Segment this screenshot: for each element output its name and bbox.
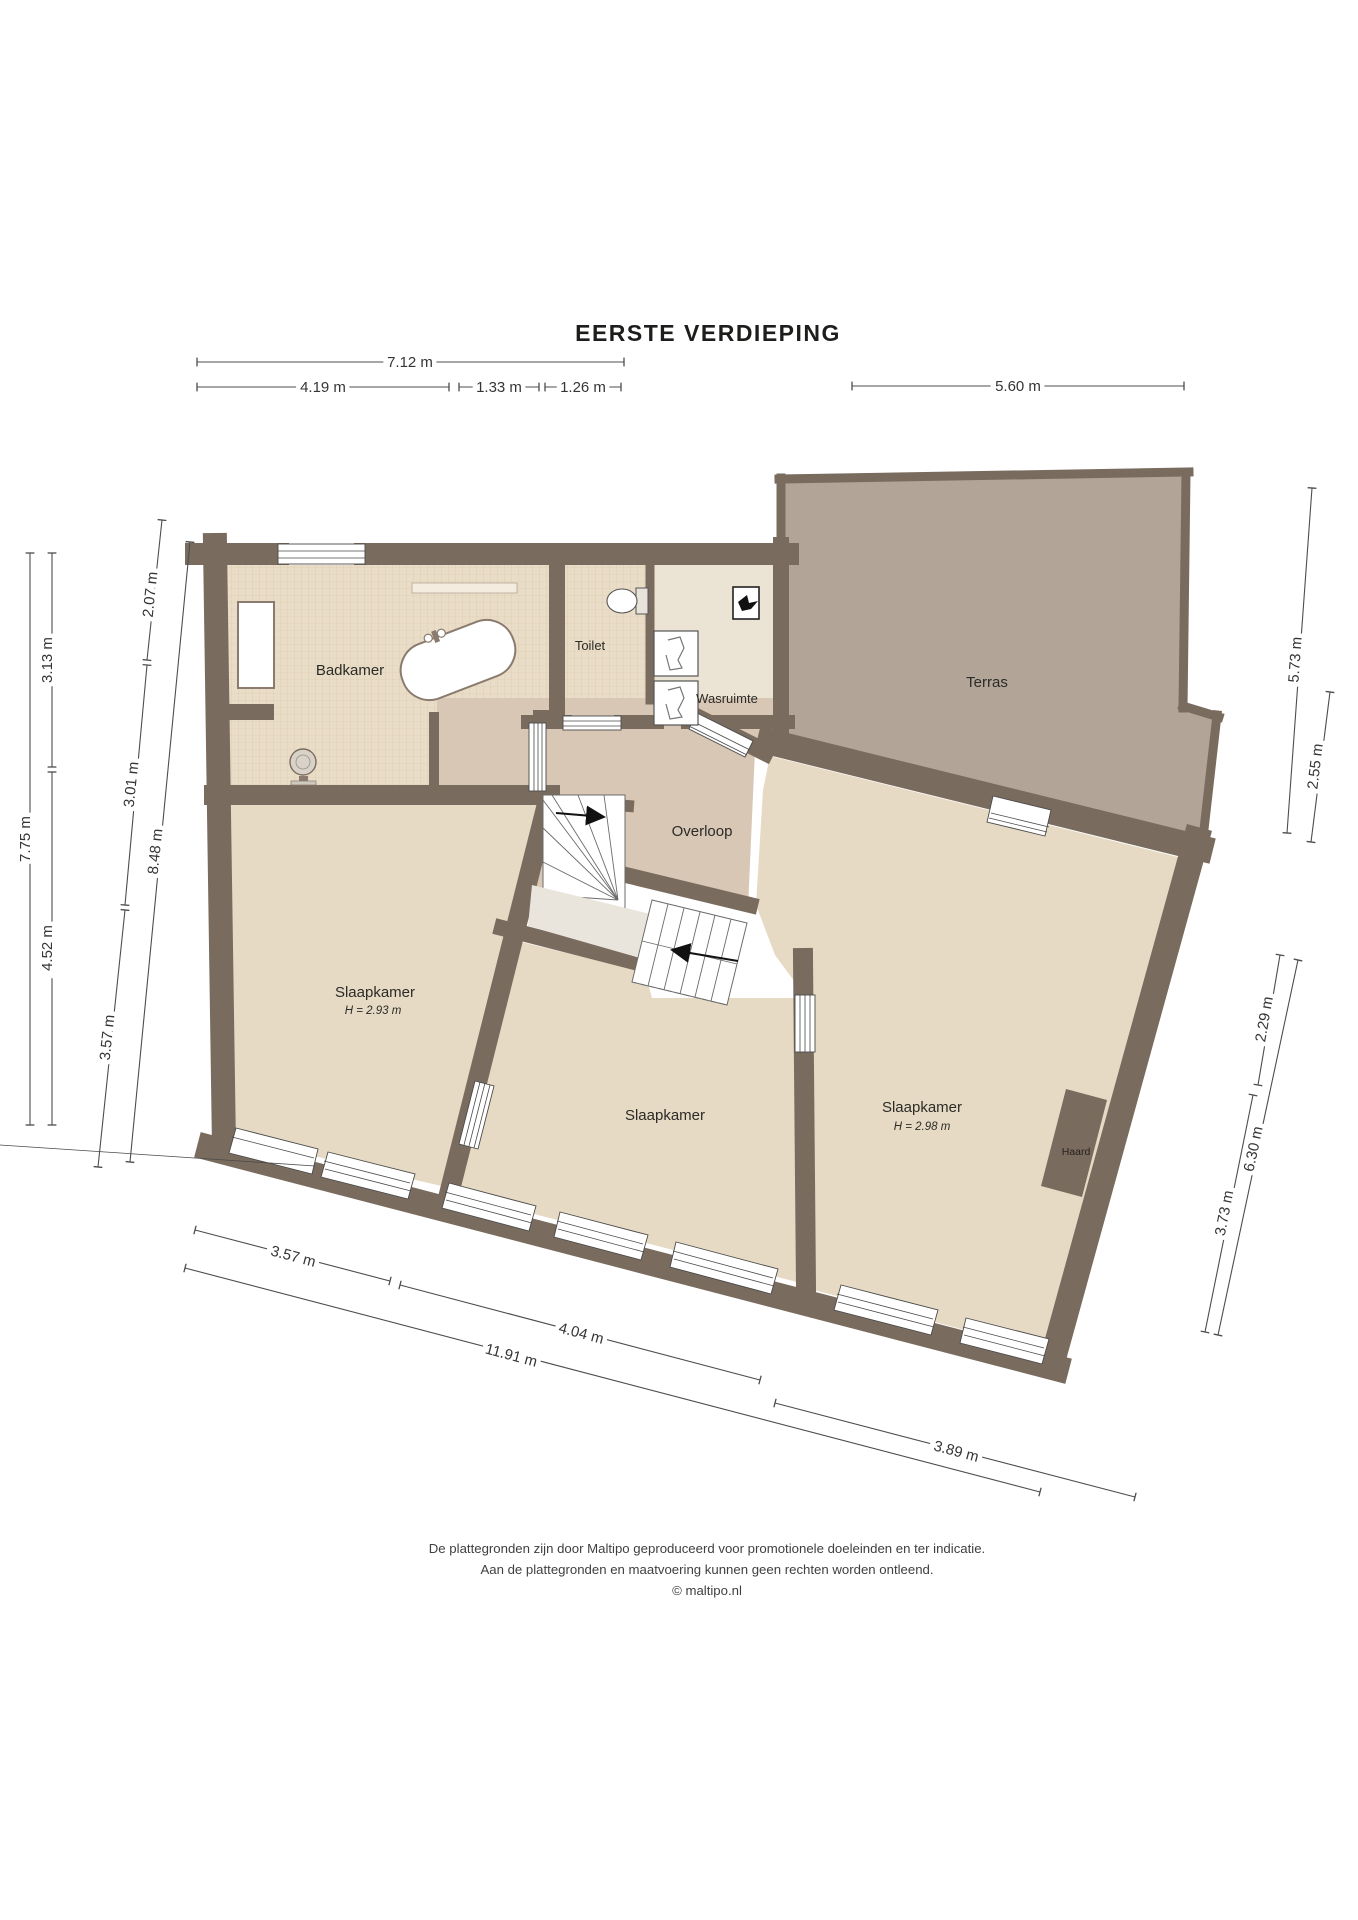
dim-bottom-389: 3.89 m — [932, 1438, 981, 1466]
floors — [214, 472, 1219, 1352]
dim-right-630: 6.30 m — [1241, 1125, 1267, 1173]
label-wasruimte: Wasruimte — [696, 691, 758, 706]
label-slaapkamer-midden: Slaapkamer — [625, 1107, 705, 1124]
cabinet — [238, 602, 274, 688]
dim-top-419: 4.19 m — [300, 379, 346, 396]
dim-bottom-404: 4.04 m — [557, 1320, 606, 1348]
label-slaapkamer-rechts: Slaapkamer — [882, 1099, 962, 1116]
label-terras: Terras — [966, 674, 1008, 691]
dim-bottom-357: 3.57 m — [269, 1243, 318, 1271]
dim-bottom-1191: 11.91 m — [483, 1341, 539, 1371]
label-slaapkamer-links: Slaapkamer — [335, 984, 415, 1001]
dim-right-255: 2.55 m — [1304, 743, 1326, 791]
dim-left-848: 8.48 m — [145, 828, 167, 875]
glazed-door — [529, 723, 546, 791]
label-toilet: Toilet — [575, 638, 606, 653]
dryer-icon — [654, 681, 698, 725]
page-title: EERSTE VERDIEPING — [575, 320, 841, 346]
dim-right-373: 3.73 m — [1212, 1189, 1237, 1237]
dim-left-313: 3.13 m — [39, 637, 56, 683]
dim-left-775: 7.75 m — [17, 816, 34, 862]
label-overloop: Overloop — [672, 823, 733, 840]
window — [278, 544, 365, 564]
footer-line-1: De plattegronden zijn door Maltipo gepro… — [429, 1541, 985, 1556]
footer: De plattegronden zijn door Maltipo gepro… — [429, 1541, 985, 1598]
label-haard: Haard — [1062, 1146, 1091, 1158]
label-slaapkamer-links-hoogte: H = 2.93 m — [345, 1005, 402, 1017]
glazed-window — [563, 716, 621, 730]
washer-icon — [654, 631, 698, 676]
dim-left-301: 3.01 m — [121, 761, 143, 808]
label-badkamer: Badkamer — [316, 662, 384, 679]
footer-line-2: Aan de plattegronden en maatvoering kunn… — [480, 1562, 933, 1577]
dim-top-126: 1.26 m — [560, 379, 606, 396]
dim-left-452: 4.52 m — [39, 925, 56, 971]
floorplan-page: Badkamer Toilet Wasruimte Terras Overloo… — [0, 0, 1358, 1920]
dim-left-357: 3.57 m — [97, 1014, 119, 1061]
dim-right-229: 2.29 m — [1252, 995, 1277, 1043]
label-slaapkamer-rechts-hoogte: H = 2.98 m — [894, 1121, 951, 1133]
toilet-fixture-icon — [607, 588, 648, 614]
dim-left-207: 2.07 m — [140, 571, 162, 618]
dim-right-573: 5.73 m — [1285, 636, 1305, 683]
dim-top-712: 7.12 m — [387, 354, 433, 371]
dim-top-133: 1.33 m — [476, 379, 522, 396]
counter — [412, 583, 517, 593]
glazed-door — [795, 995, 815, 1052]
footer-line-3: © maltipo.nl — [672, 1583, 742, 1598]
dim-top-560: 5.60 m — [995, 378, 1041, 395]
floor-plan: Badkamer Toilet Wasruimte Terras Overloo… — [0, 0, 1358, 1920]
mechanical-ventilation-icon — [733, 587, 759, 619]
